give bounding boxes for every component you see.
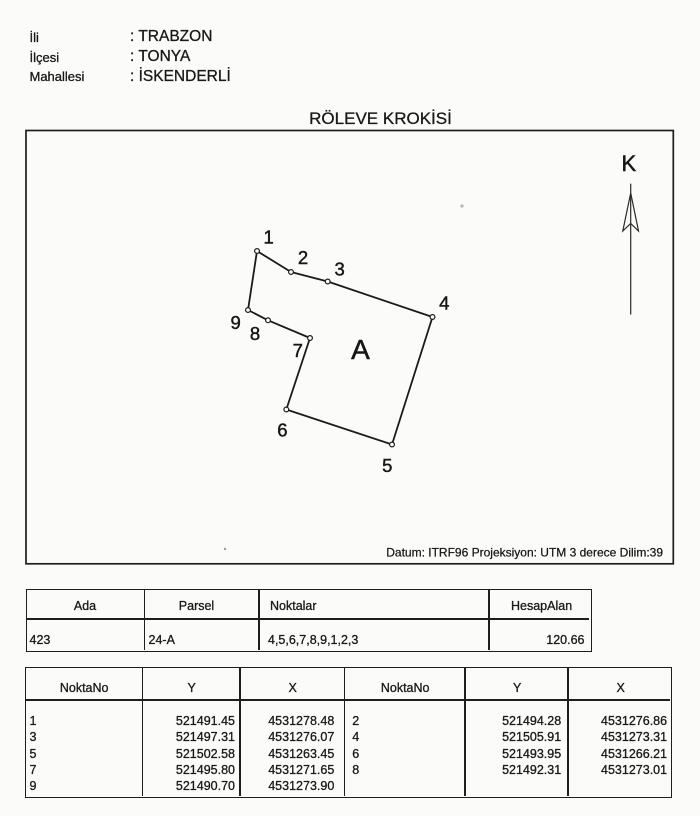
svg-text:8: 8 — [250, 323, 260, 344]
svg-text:1: 1 — [263, 227, 273, 248]
svg-text:9: 9 — [231, 312, 241, 333]
svg-text:7: 7 — [293, 340, 303, 361]
svg-text:6: 6 — [277, 420, 287, 441]
svg-text:4: 4 — [439, 293, 449, 314]
svg-text:A: A — [351, 334, 370, 365]
svg-text:3: 3 — [335, 258, 345, 279]
svg-text:5: 5 — [382, 455, 392, 476]
svg-text:Datum: ITRF96 Projeksiyon: UTM: Datum: ITRF96 Projeksiyon: UTM 3 derece … — [386, 546, 663, 560]
svg-text:2: 2 — [298, 247, 308, 268]
svg-text:K: K — [621, 151, 636, 176]
